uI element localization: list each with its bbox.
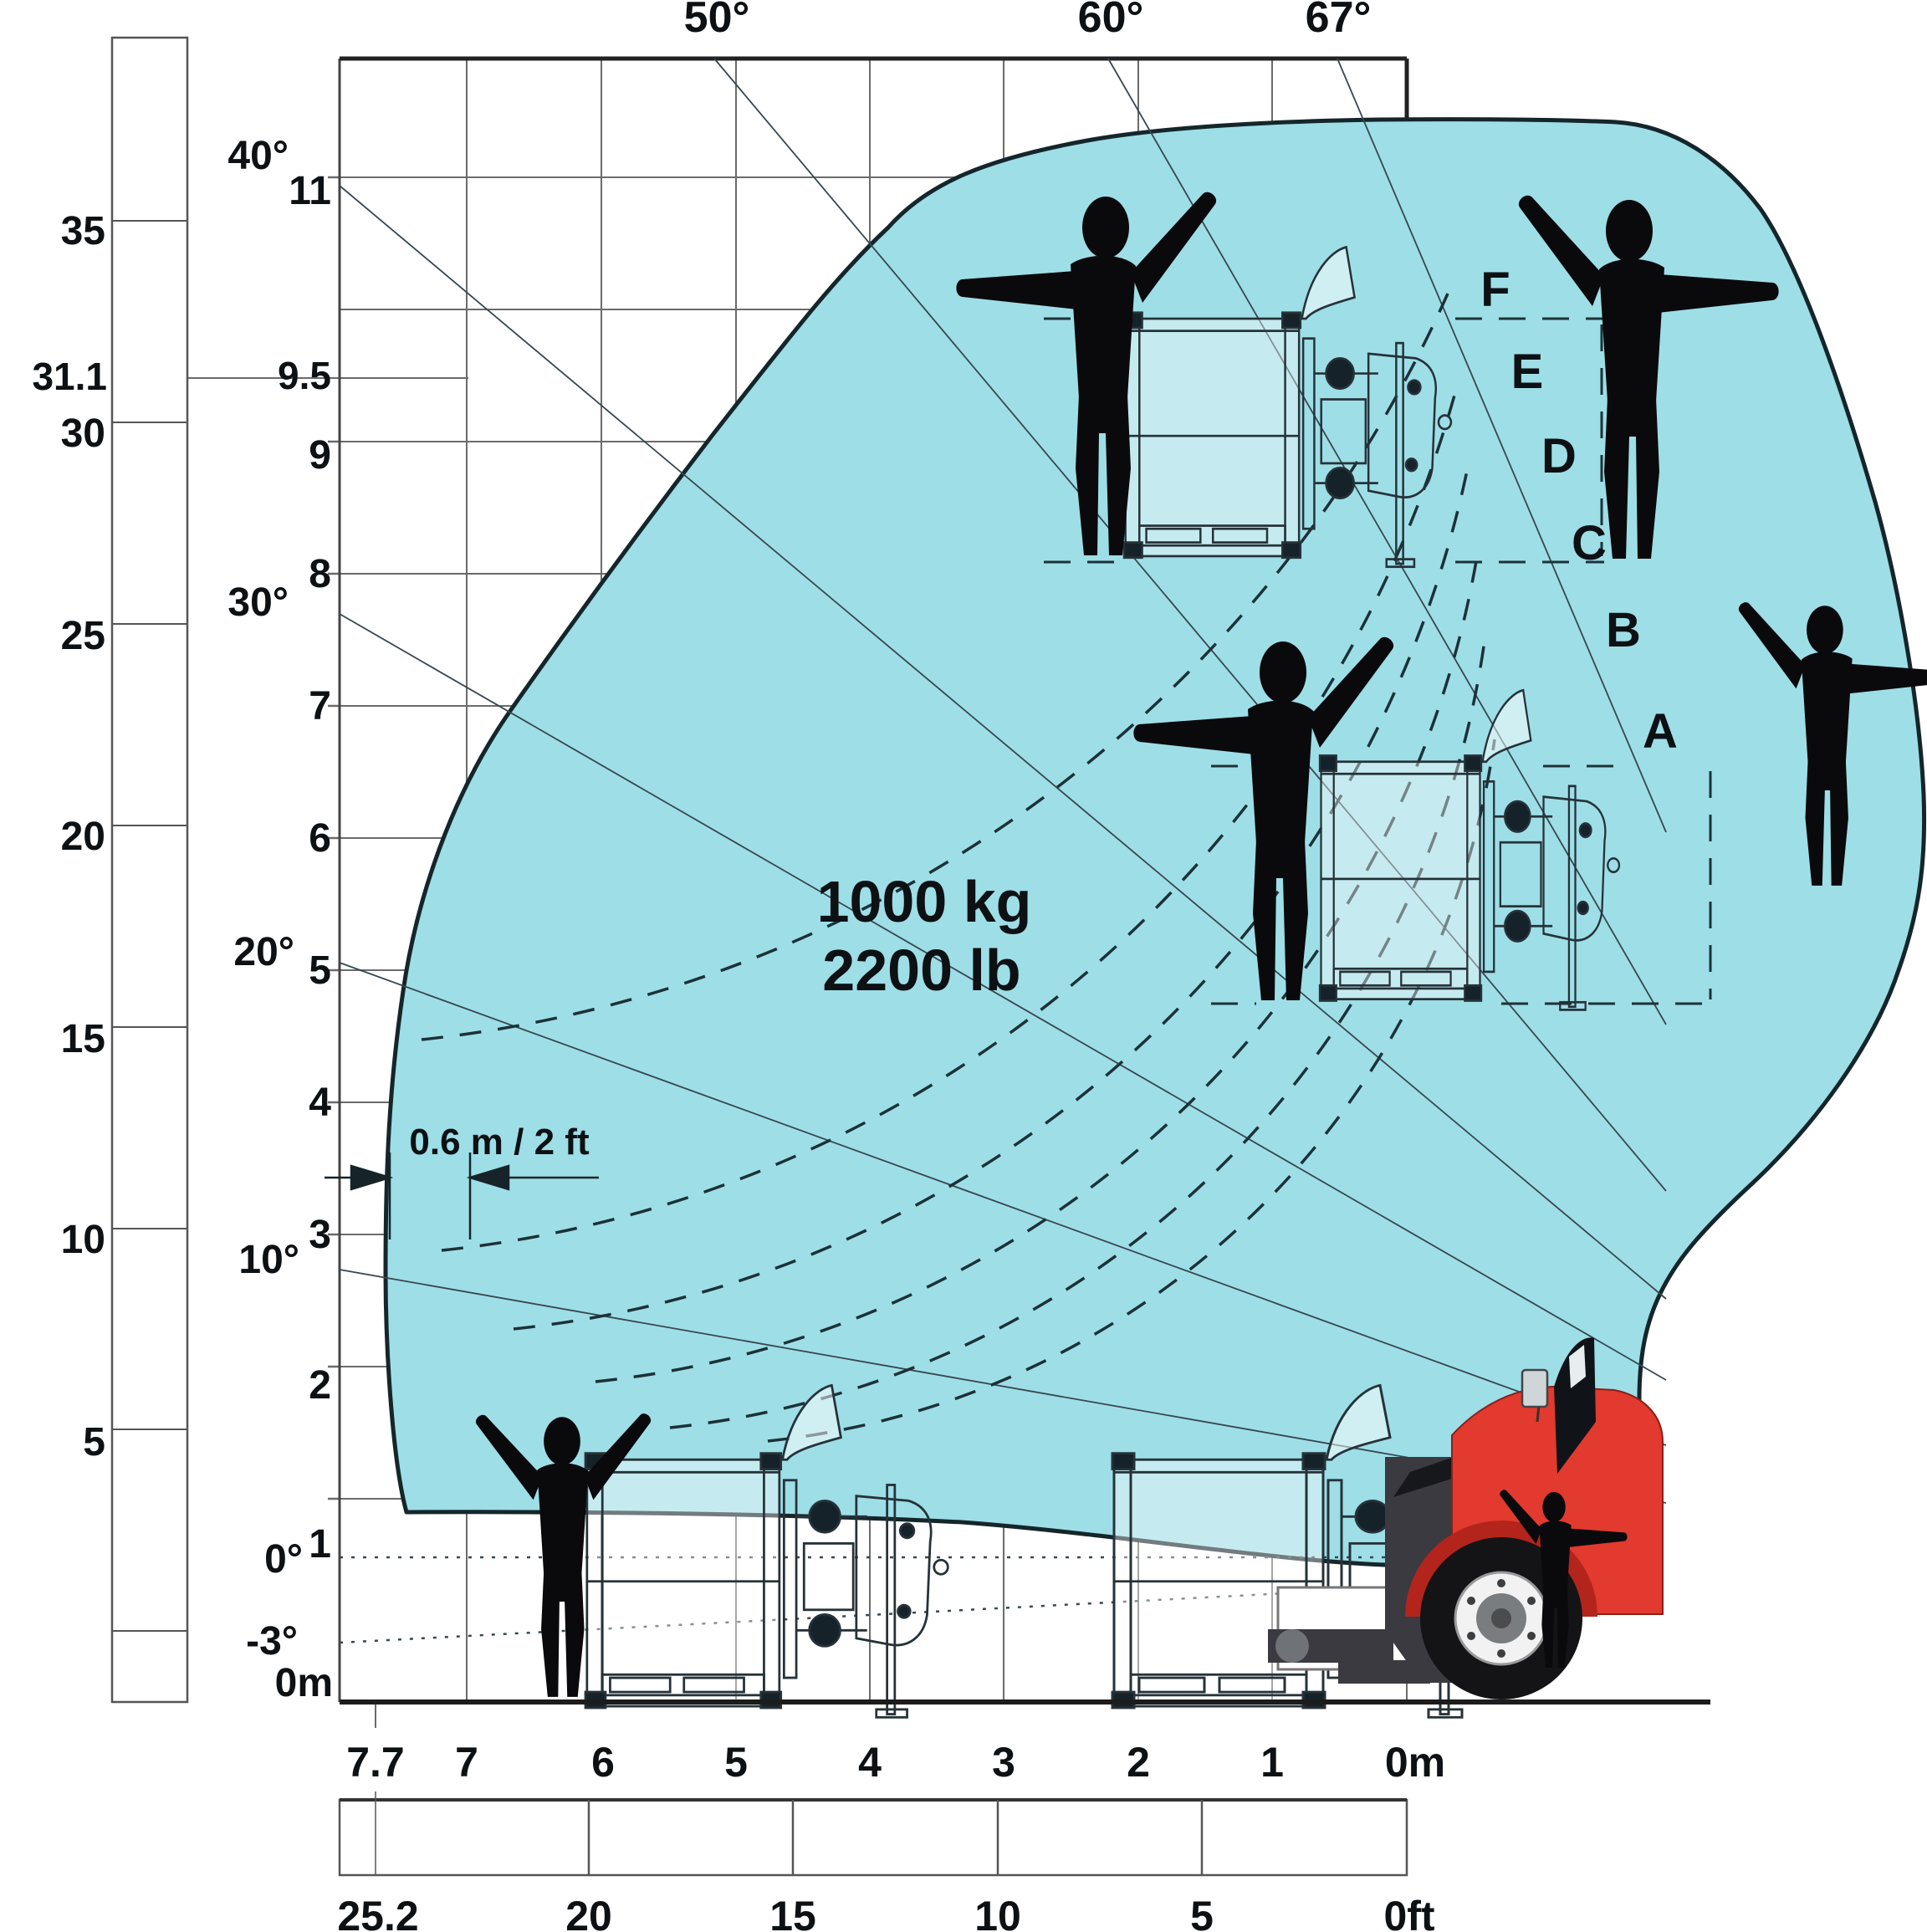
label-left-angle-20: 20° [233,930,294,974]
label-dimension-note: 0.6 m / 2 ft [409,1122,590,1163]
label-left-m-2: 2 [309,1363,331,1408]
label-curve-label-d: D [1541,429,1577,483]
label-left-m-9: 9 [309,433,331,478]
label-bottom-ft-0: 0ft [1383,1893,1434,1932]
label-top-angle-60: 60° [1078,0,1144,42]
label-curve-label-f: F [1480,263,1510,317]
label-bottom-m-1: 1 [1260,1739,1284,1786]
working-range-diagram: 50°60°67°3531.130252015105119.5987654321… [0,0,1927,1932]
label-top-angle-67: 67° [1306,0,1372,42]
label-left-ft-35: 35 [61,209,105,253]
label-left-ft-10: 10 [61,1218,105,1262]
label-bottom-ft-20: 20 [565,1893,612,1932]
label-curve-label-a: A [1643,704,1678,759]
label-bottom-m-3: 3 [992,1739,1015,1786]
label-left-m-5: 5 [309,948,331,993]
label-bottom-m-7-7: 7.7 [346,1739,405,1786]
label-bottom-m-4: 4 [858,1739,882,1786]
label-left-ft-20: 20 [61,815,105,859]
label-left-ft-25: 25 [61,614,105,658]
label-top-angle-50: 50° [684,0,750,42]
label-left-ft-15: 15 [61,1017,105,1061]
label-curve-label-b: B [1606,603,1641,657]
label-left-ft-30: 30 [61,411,105,456]
dimension-arrow-left [351,1166,390,1189]
label-left-angle-neg3: -3° [246,1619,298,1664]
label-bottom-m-0: 0m [1385,1739,1445,1786]
label-left-angle-30: 30° [227,580,289,625]
label-left-m-3: 3 [309,1213,331,1257]
label-left-ft-31-1: 31.1 [32,355,107,398]
label-bottom-ft-10: 10 [974,1893,1021,1932]
label-left-m-11: 11 [289,169,331,213]
label-capacity-kg: 1000 kg [817,869,1032,934]
label-left-ft-5: 5 [83,1420,105,1464]
label-bottom-ft-15: 15 [769,1893,816,1932]
label-bottom-m-2: 2 [1127,1739,1150,1786]
label-bottom-m-5: 5 [724,1739,748,1786]
label-left-m-6: 6 [309,816,331,861]
bottom-feet-ruler [340,1791,1407,1875]
label-left-angle-10: 10° [238,1238,299,1282]
label-left-angle-40: 40° [227,134,289,178]
label-bottom-ft-5: 5 [1190,1893,1214,1932]
load-chart-page: 50°60°67°3531.130252015105119.5987654321… [0,0,1927,1932]
label-left-m-4: 4 [309,1081,331,1125]
machine-mirror [1522,1370,1547,1407]
label-bottom-m-6: 6 [591,1739,615,1786]
label-left-m-1: 1 [309,1522,331,1567]
label-bottom-ft-25-2: 25.2 [337,1893,418,1932]
left-feet-ruler [112,38,187,1702]
label-left-m-0: 0m [275,1661,333,1705]
label-curve-label-e: E [1511,345,1544,399]
label-left-m-7: 7 [309,684,331,728]
label-bottom-m-7: 7 [455,1739,478,1786]
label-curve-label-c: C [1572,516,1607,570]
label-left-m-8: 8 [309,552,331,596]
label-left-m-9-5: 9.5 [278,354,331,397]
label-left-angle-0: 0° [264,1537,303,1582]
label-capacity-lb: 2200 lb [822,938,1020,1003]
